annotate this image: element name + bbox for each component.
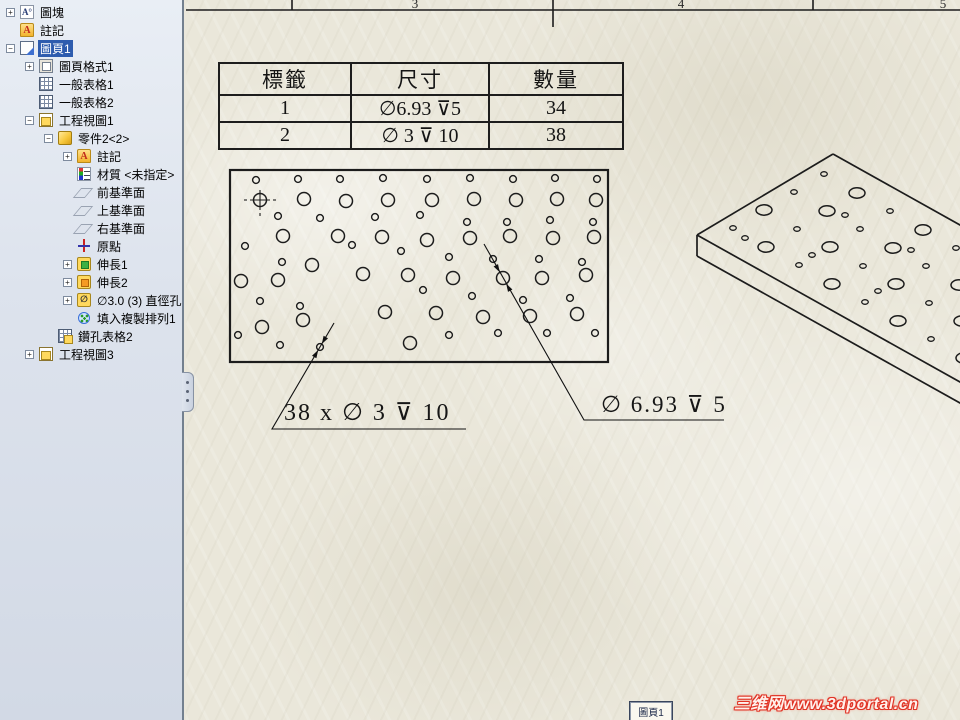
iso-hole-small [928, 337, 935, 342]
iso-hole-small [842, 213, 849, 218]
tree-item-label: 填入複製排列1 [95, 310, 178, 327]
splitter-dot [186, 399, 189, 402]
hole-large [430, 307, 443, 320]
tree-item-19[interactable]: +工程視圖3 [25, 345, 116, 363]
tree-item-label: 伸長1 [95, 256, 130, 273]
tree-item-label: 右基準面 [95, 220, 147, 237]
hole-table-row: 1∅6.93 ⊽534 [219, 95, 623, 122]
hole-large [421, 234, 434, 247]
origin-icon [77, 239, 91, 253]
tree-item-10[interactable]: 前基準面 [63, 183, 147, 201]
hole-table-cell[interactable]: ∅6.93 ⊽5 [351, 95, 489, 122]
hole-large [590, 194, 603, 207]
tree-item-16[interactable]: +∅∅3.0 (3) 直徑孔1 [63, 291, 184, 309]
tree-item-17[interactable]: 填入複製排列1 [63, 309, 178, 327]
tree-item-4[interactable]: 一般表格1 [25, 75, 116, 93]
hole-table-annotation[interactable]: 標籤尺寸數量 1∅6.93 ⊽5342∅ 3 ⊽ 1038 [218, 62, 624, 150]
extrude2-icon [77, 275, 91, 289]
hole-small [277, 342, 284, 349]
hole-large [571, 308, 584, 321]
tree-item-12[interactable]: 右基準面 [63, 219, 147, 237]
hole-small [520, 297, 527, 304]
expand-toggle[interactable]: + [63, 296, 72, 305]
hole-small [446, 254, 453, 261]
fill-pattern-icon [77, 311, 91, 325]
tree-item-14[interactable]: +伸長1 [63, 255, 130, 273]
tree-item-0[interactable]: +A°圖塊 [6, 3, 66, 21]
hole-large [306, 259, 319, 272]
tree-item-11[interactable]: 上基準面 [63, 201, 147, 219]
hole-table-header: 標籤尺寸數量 [219, 63, 623, 95]
hole-table-icon [58, 329, 72, 343]
sheet-format-icon [39, 59, 53, 73]
hole-small [253, 177, 260, 184]
hole-small [467, 175, 474, 182]
tree-item-9[interactable]: 材質 <未指定> [63, 165, 176, 183]
tree-item-label: 前基準面 [95, 184, 147, 201]
hole-large [277, 230, 290, 243]
block-icon: A° [20, 5, 34, 19]
hole-large [379, 306, 392, 319]
hole-large [297, 314, 310, 327]
hole-small [275, 213, 282, 220]
iso-hole-small [809, 253, 816, 258]
table-icon [39, 95, 53, 109]
iso-hole-small [730, 226, 737, 231]
hole-callout-large[interactable]: ∅ 6.93 ⊽ 5 [601, 392, 727, 418]
hole-large [504, 230, 517, 243]
hole-large [477, 311, 490, 324]
splitter-dot [186, 390, 189, 393]
iso-hole-small [821, 172, 828, 177]
iso-hole-small [908, 248, 915, 253]
hole-small [547, 217, 554, 224]
drawing-view-icon [39, 113, 53, 127]
hole-large [547, 232, 560, 245]
tree-item-1[interactable]: A註記 [6, 21, 66, 39]
hole-small [398, 248, 405, 255]
hole-large [551, 193, 564, 206]
plane-icon [77, 203, 91, 217]
iso-hole-large [819, 206, 835, 216]
annot-folder-icon: A [77, 149, 91, 163]
hole-small [235, 332, 242, 339]
hole-small [317, 215, 324, 222]
tree-item-label: 圖頁格式1 [57, 58, 116, 75]
hole-large [382, 194, 395, 207]
tree-item-label: 上基準面 [95, 202, 147, 219]
iso-hole-small [796, 263, 803, 268]
hole-small [372, 214, 379, 221]
iso-hole-large [954, 316, 960, 326]
expand-toggle[interactable]: + [63, 278, 72, 287]
expand-toggle[interactable]: + [25, 62, 34, 71]
iso-hole-large [888, 279, 904, 289]
front-view[interactable] [230, 170, 608, 362]
panel-splitter-handle[interactable] [182, 372, 194, 412]
iso-hole-small [887, 209, 894, 214]
hole-small [552, 175, 559, 182]
tree-item-label: ∅3.0 (3) 直徑孔1 [95, 292, 184, 309]
part-icon [58, 131, 72, 145]
hole-small [349, 242, 356, 249]
hole-table-cell[interactable]: 34 [489, 95, 623, 122]
hole-feature-icon: ∅ [77, 293, 91, 307]
iso-hole-large [758, 242, 774, 252]
hole-large [272, 274, 285, 287]
hole-small [592, 330, 599, 337]
leader-arrowhead [506, 284, 512, 292]
hole-large [426, 194, 439, 207]
hole-large [376, 231, 389, 244]
origin-center-mark [244, 190, 276, 216]
hole-small [464, 219, 471, 226]
expand-toggle[interactable]: + [63, 260, 72, 269]
tree-item-label: 註記 [95, 148, 123, 165]
solidworks-window: +A°圖塊A註記−圖頁1+圖頁格式1一般表格1一般表格2−工程視圖1−零件2<2… [0, 0, 960, 720]
tree-item-label: 工程視圖3 [57, 346, 116, 363]
sheet-icon [20, 41, 34, 55]
iso-hole-large [956, 353, 960, 363]
hole-small [257, 298, 264, 305]
hole-small [297, 303, 304, 310]
tree-item-8[interactable]: +A註記 [63, 147, 123, 165]
iso-hole-large [822, 242, 838, 252]
hole-large [588, 231, 601, 244]
leader-arrowhead [312, 350, 318, 358]
hole-large [340, 195, 353, 208]
tree-item-label: 註記 [38, 22, 66, 39]
hole-small [590, 219, 597, 226]
zone-border: 345 [186, 0, 960, 27]
hole-table-cell[interactable]: ∅ 3 ⊽ 10 [351, 122, 489, 149]
iso-hole-large [890, 316, 906, 326]
tree-item-18[interactable]: 鑽孔表格2 [44, 327, 135, 345]
drawing-view-icon [39, 347, 53, 361]
iso-hole-small [875, 289, 882, 294]
iso-hole-small [926, 301, 933, 306]
hole-large [298, 193, 311, 206]
hole-small [420, 287, 427, 294]
tree-item-3[interactable]: +圖頁格式1 [25, 57, 116, 75]
iso-hole-large [756, 205, 772, 215]
tree-item-label: 鑽孔表格2 [76, 328, 135, 345]
hole-large [235, 275, 248, 288]
iso-hole-small [923, 264, 930, 269]
hole-large [510, 194, 523, 207]
zone-digit: 5 [940, 0, 947, 11]
hole-small [544, 330, 551, 337]
hole-large [404, 337, 417, 350]
hole-large [332, 230, 345, 243]
hole-large [357, 268, 370, 281]
hole-small [567, 295, 574, 302]
tree-item-label: 伸長2 [95, 274, 130, 291]
extrude1-icon [77, 257, 91, 271]
hole-small [510, 176, 517, 183]
tree-item-5[interactable]: 一般表格2 [25, 93, 116, 111]
hole-large [464, 232, 477, 245]
tree-item-15[interactable]: +伸長2 [63, 273, 130, 291]
hole-table-cell[interactable]: 1 [219, 95, 351, 122]
iso-hole-small [857, 227, 864, 232]
hole-large [468, 193, 481, 206]
iso-hole-large [824, 279, 840, 289]
hole-large [536, 272, 549, 285]
hole-small [469, 293, 476, 300]
tree-item-label: 圖頁1 [38, 40, 73, 57]
splitter-dot [186, 381, 189, 384]
iso-hole-small [794, 227, 801, 232]
iso-hole-large [915, 225, 931, 235]
hole-small [594, 176, 601, 183]
iso-hole-small [791, 190, 798, 195]
tree-item-label: 原點 [95, 238, 123, 255]
hole-small [242, 243, 249, 250]
expand-toggle[interactable]: − [25, 116, 34, 125]
hole-small [417, 212, 424, 219]
hole-table-cell[interactable]: 38 [489, 122, 623, 149]
iso-hole-small [742, 236, 749, 241]
plane-icon [77, 185, 91, 199]
feature-manager-tree: +A°圖塊A註記−圖頁1+圖頁格式1一般表格1一般表格2−工程視圖1−零件2<2… [0, 0, 184, 720]
expand-toggle[interactable]: + [63, 152, 72, 161]
hole-small [536, 256, 543, 263]
tree-item-label: 材質 <未指定> [95, 166, 176, 183]
zone-digit: 4 [678, 0, 685, 11]
tree-item-label: 一般表格1 [57, 76, 116, 93]
table-icon [39, 77, 53, 91]
hole-small [279, 259, 286, 266]
watermark-text: 三维网www.3dportal.cn [734, 690, 918, 714]
tree-item-2[interactable]: −圖頁1 [6, 39, 73, 57]
hole-small [495, 330, 502, 337]
tree-item-label: 圖塊 [38, 4, 66, 21]
hole-small [337, 176, 344, 183]
hole-table-body: 1∅6.93 ⊽5342∅ 3 ⊽ 1038 [219, 95, 623, 149]
hole-callout-small[interactable]: 38 x ∅ 3 ⊽ 10 [284, 398, 450, 427]
hole-table-col-header[interactable]: 數量 [489, 63, 623, 95]
tree-item-6[interactable]: −工程視圖1 [25, 111, 116, 129]
expand-toggle[interactable]: + [25, 350, 34, 359]
iso-hole-small [953, 246, 960, 251]
leader-arrowhead [322, 336, 328, 344]
iso-hole-large [951, 280, 960, 290]
hole-small [504, 219, 511, 226]
plane-icon [77, 221, 91, 235]
iso-view[interactable] [697, 154, 960, 417]
hole-large [402, 269, 415, 282]
hole-large [256, 321, 269, 334]
zone-digit: 3 [412, 0, 419, 11]
tree-item-label: 零件2<2> [76, 130, 131, 147]
hole-small [446, 332, 453, 339]
tree-item-label: 一般表格2 [57, 94, 116, 111]
hole-small [380, 175, 387, 182]
tree-item-7[interactable]: −零件2<2> [44, 129, 131, 147]
hole-table-cell[interactable]: 2 [219, 122, 351, 149]
material-icon [77, 167, 91, 181]
hole-small [579, 259, 586, 266]
expand-toggle[interactable]: − [6, 44, 15, 53]
hole-large [447, 272, 460, 285]
drawing-sheet[interactable]: 345 標籤尺寸數量 1∅6.93 ⊽5342∅ 3 ⊽ 1038 38 x ∅… [186, 0, 960, 720]
hole-large [580, 269, 593, 282]
leader-arrowhead [494, 264, 500, 272]
iso-hole-small [862, 300, 869, 305]
iso-hole-large [849, 188, 865, 198]
iso-hole-large [885, 243, 901, 253]
tree-item-label: 工程視圖1 [57, 112, 116, 129]
hole-table-col-header[interactable]: 尺寸 [351, 63, 489, 95]
expand-toggle[interactable]: − [44, 134, 53, 143]
hole-table-col-header[interactable]: 標籤 [219, 63, 351, 95]
expand-toggle[interactable]: + [6, 8, 15, 17]
sheet-tab[interactable]: 圖頁1 [629, 701, 673, 720]
iso-hole-small [860, 264, 867, 269]
hole-small [424, 176, 431, 183]
hole-small [295, 176, 302, 183]
tree-item-13[interactable]: 原點 [63, 237, 123, 255]
annot-folder-icon: A [20, 23, 34, 37]
hole-table-row: 2∅ 3 ⊽ 1038 [219, 122, 623, 149]
